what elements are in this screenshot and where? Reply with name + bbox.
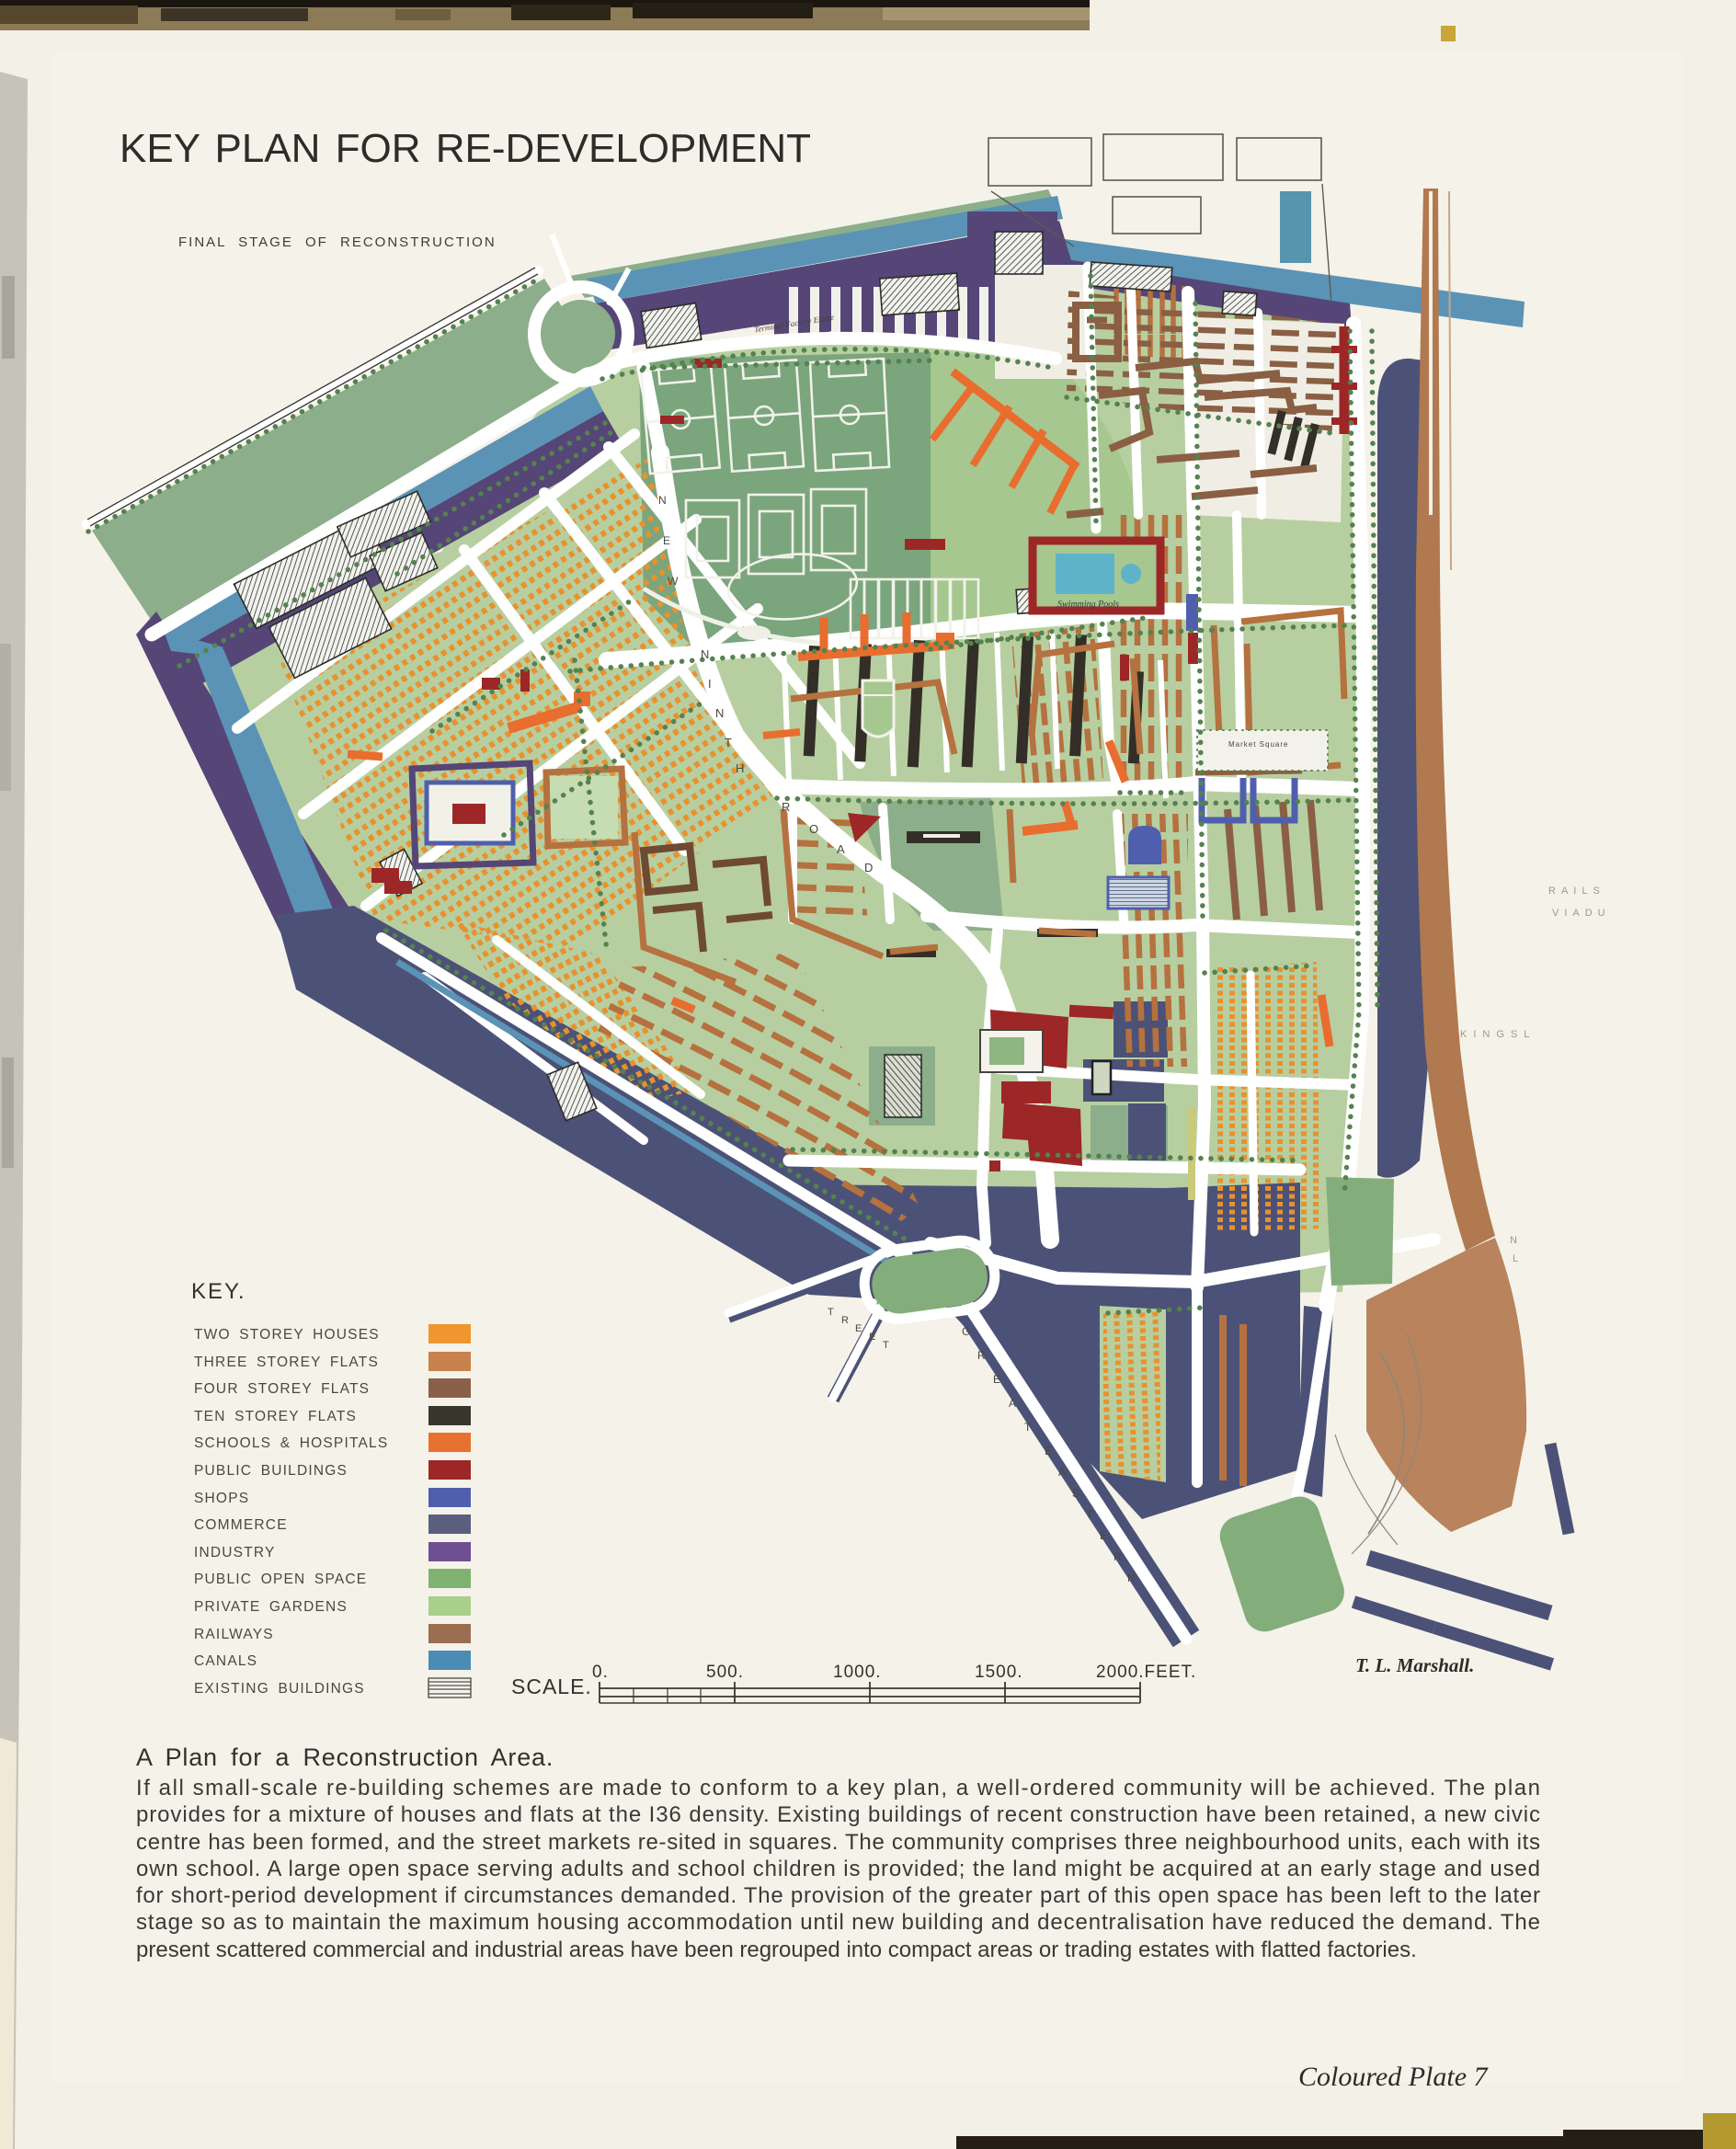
svg-text:E: E [663, 534, 670, 547]
svg-text:T: T [883, 1340, 889, 1351]
svg-text:If all small-scale re-building: If all small-scale re-building schemes a… [136, 1776, 1540, 1800]
svg-text:SCALE.: SCALE. [511, 1675, 592, 1698]
svg-text:provides for a mixture of hous: provides for a mixture of houses and fla… [136, 1802, 1540, 1827]
svg-text:E: E [1100, 1529, 1107, 1542]
svg-text:FOUR STOREY FLATS: FOUR STOREY FLATS [194, 1381, 370, 1397]
svg-text:N: N [701, 647, 709, 661]
svg-text:E: E [869, 1332, 875, 1343]
svg-text:N: N [715, 706, 724, 720]
svg-text:RAILS: RAILS [1548, 886, 1605, 897]
svg-text:2000.FEET.: 2000.FEET. [1096, 1663, 1196, 1682]
svg-text:R: R [977, 1349, 986, 1362]
svg-text:stage so as to maintain the ma: stage so as to maintain the maximum hous… [136, 1910, 1540, 1935]
svg-text:FINAL STAGE OF RECONSTRUCTION: FINAL STAGE OF RECONSTRUCTION [178, 234, 497, 250]
svg-text:R: R [782, 800, 790, 814]
svg-text:THREE STOREY FLATS: THREE STOREY FLATS [194, 1355, 379, 1370]
svg-text:R: R [1114, 1550, 1122, 1563]
svg-text:for short-period development i: for short-period development if circumst… [136, 1883, 1540, 1908]
svg-text:COMMERCE: COMMERCE [194, 1517, 288, 1533]
svg-text:E: E [1045, 1445, 1052, 1457]
svg-text:W: W [668, 575, 679, 588]
svg-text:1500.: 1500. [975, 1663, 1023, 1682]
svg-text:T. L. Marshall.: T. L. Marshall. [1355, 1654, 1474, 1676]
svg-text:T: T [1024, 1421, 1032, 1434]
svg-text:PUBLIC BUILDINGS: PUBLIC BUILDINGS [194, 1463, 348, 1479]
svg-text:E: E [993, 1373, 1000, 1386]
svg-text:KEY.: KEY. [191, 1279, 246, 1304]
svg-text:KINGSL: KINGSL [1460, 1029, 1536, 1040]
svg-text:N: N [1510, 1235, 1517, 1246]
svg-text:G: G [962, 1325, 970, 1338]
svg-text:0.: 0. [592, 1663, 609, 1682]
svg-text:PRIVATE GARDENS: PRIVATE GARDENS [194, 1599, 348, 1615]
svg-text:Market Square: Market Square [1228, 740, 1288, 749]
svg-text:SHOPS: SHOPS [194, 1491, 249, 1506]
svg-text:R: R [841, 1315, 849, 1326]
svg-text:TWO STOREY HOUSES: TWO STOREY HOUSES [194, 1327, 380, 1343]
svg-text:own school. A large open spa: own school. A large open space serving a… [136, 1857, 1540, 1881]
svg-text:KEY PLAN FOR RE-DEVELOPMENT: KEY PLAN FOR RE-DEVELOPMENT [120, 126, 811, 171]
svg-text:D: D [864, 861, 873, 874]
svg-text:Swimming Pools: Swimming Pools [1057, 600, 1119, 610]
svg-text:SCHOOLS & HOSPITALS: SCHOOLS & HOSPITALS [194, 1435, 388, 1451]
svg-text:TEN STOREY FLATS: TEN STOREY FLATS [194, 1409, 357, 1424]
svg-text:N: N [1127, 1572, 1136, 1584]
svg-text:A: A [1009, 1397, 1016, 1410]
svg-text:E: E [855, 1323, 862, 1334]
svg-text:I: I [708, 677, 712, 691]
svg-text:A: A [1058, 1466, 1066, 1479]
svg-text:T: T [828, 1307, 834, 1318]
svg-text:centre has been formed, and th: centre has been formed, and the street m… [136, 1830, 1540, 1855]
svg-text:A: A [837, 842, 845, 856]
svg-text:VIADU: VIADU [1552, 908, 1611, 919]
svg-text:PUBLIC OPEN SPACE: PUBLIC OPEN SPACE [194, 1572, 367, 1587]
svg-text:INDUSTRY: INDUSTRY [194, 1545, 276, 1560]
svg-text:Coloured Plate 7: Coloured Plate 7 [1298, 2062, 1490, 2092]
svg-text:L: L [1513, 1253, 1518, 1264]
svg-text:RAILWAYS: RAILWAYS [194, 1627, 274, 1642]
svg-text:N: N [658, 494, 667, 507]
svg-text:O: O [809, 822, 818, 836]
svg-text:T: T [1086, 1508, 1093, 1521]
svg-text:S: S [1072, 1487, 1079, 1500]
svg-text:EXISTING BUILDINGS: EXISTING BUILDINGS [194, 1681, 365, 1697]
svg-text:T: T [725, 736, 732, 749]
svg-text:present scattered commercial a: present scattered commercial and industr… [136, 1938, 1417, 1962]
svg-text:A Plan for a Reconstruction Ar: A Plan for a Reconstruction Area. [136, 1743, 554, 1771]
svg-text:1000.: 1000. [833, 1663, 882, 1682]
svg-text:500.: 500. [706, 1663, 744, 1682]
svg-text:CANALS: CANALS [194, 1653, 257, 1669]
svg-text:H: H [736, 761, 744, 775]
